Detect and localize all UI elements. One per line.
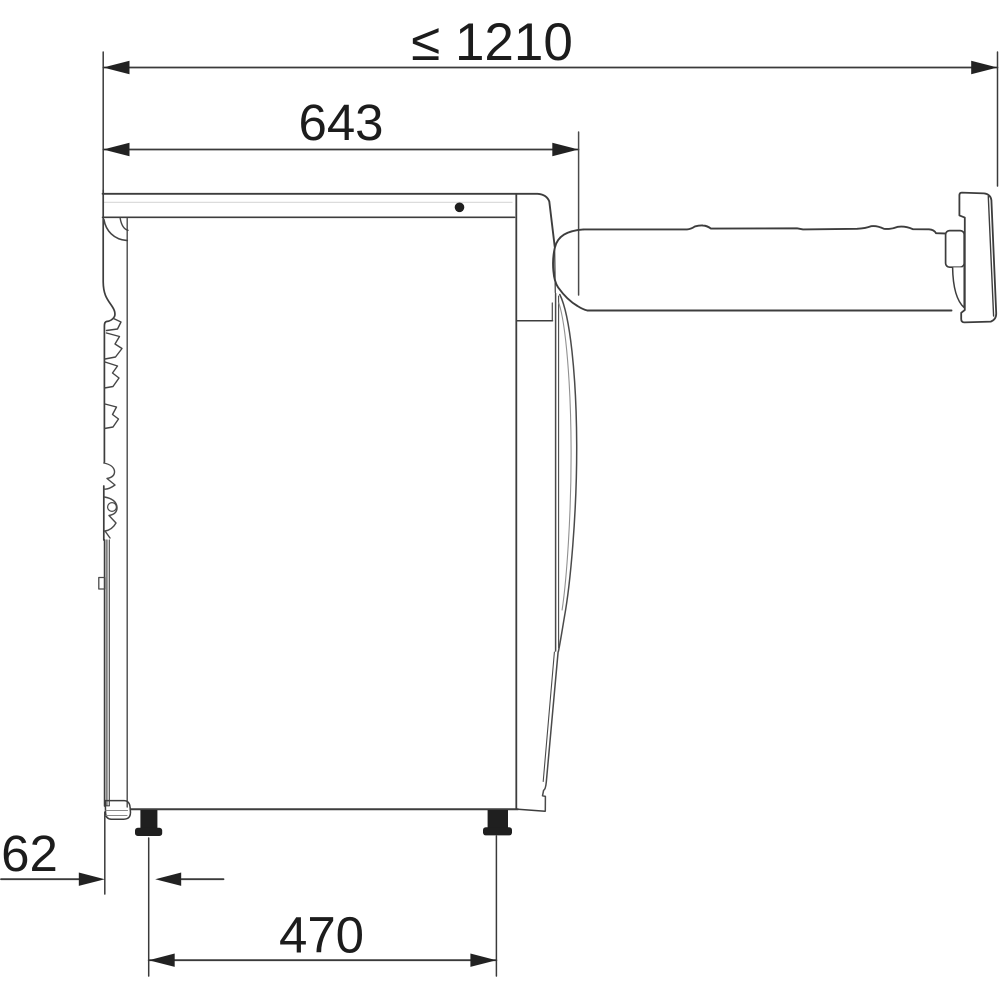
svg-text:≤ 1210: ≤ 1210	[411, 13, 573, 72]
svg-text:470: 470	[279, 907, 364, 964]
svg-text:62: 62	[1, 825, 58, 882]
svg-text:643: 643	[298, 94, 383, 151]
